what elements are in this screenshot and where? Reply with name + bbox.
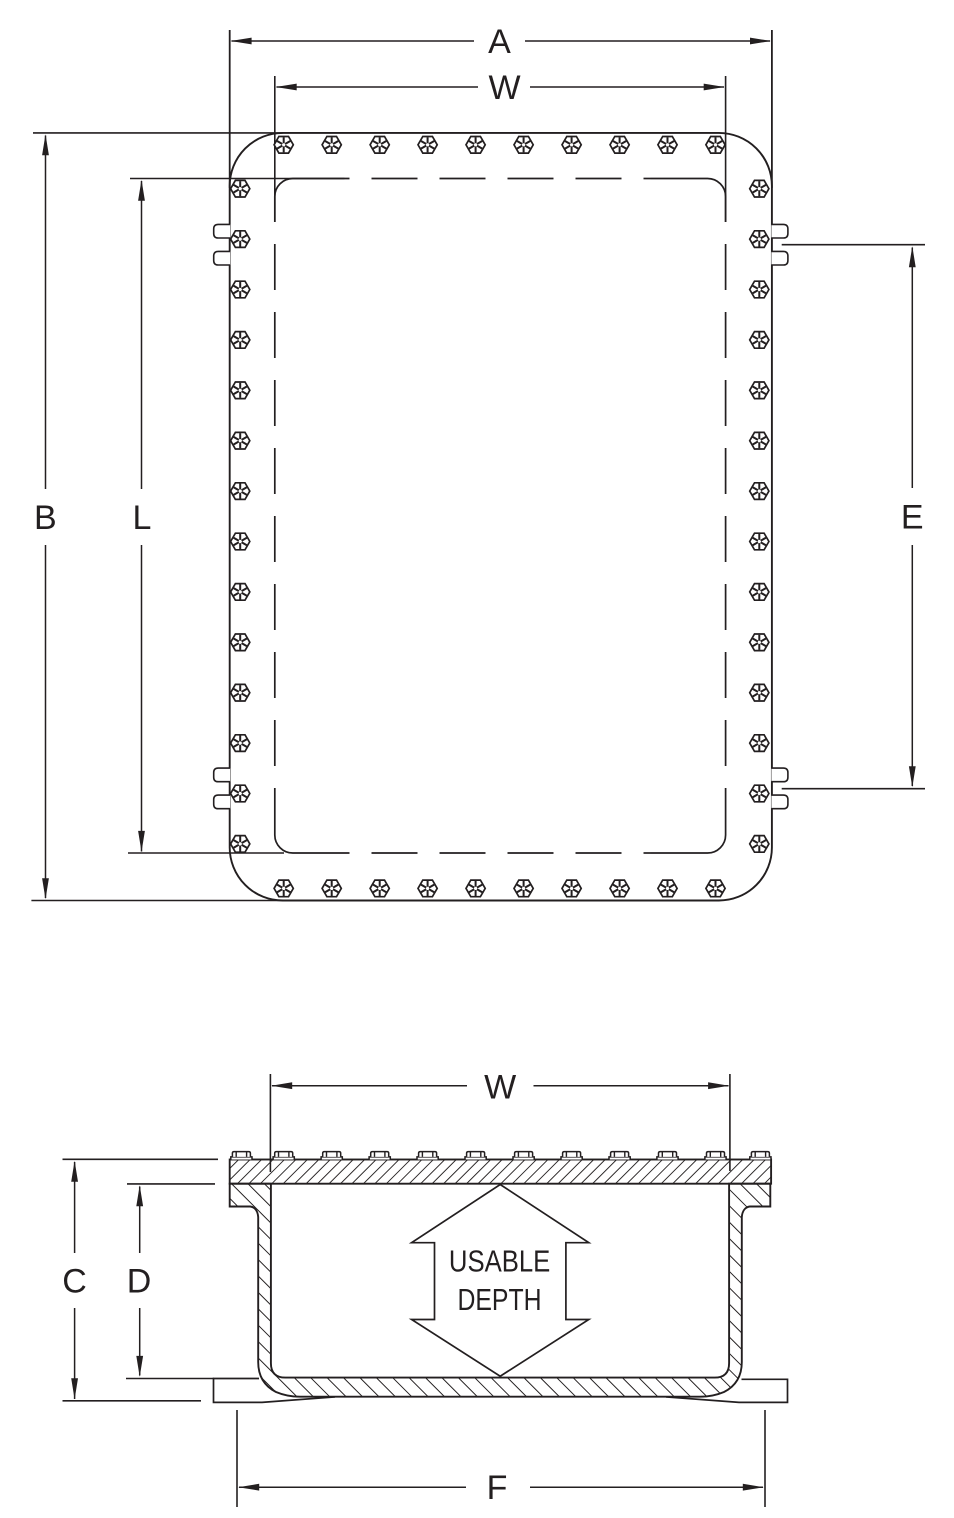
svg-text:W: W xyxy=(488,69,520,107)
svg-text:USABLE: USABLE xyxy=(449,1244,550,1279)
svg-text:W: W xyxy=(484,1069,516,1107)
svg-text:L: L xyxy=(133,499,152,537)
svg-text:DEPTH: DEPTH xyxy=(457,1282,541,1317)
svg-text:E: E xyxy=(901,499,924,537)
svg-text:F: F xyxy=(487,1469,508,1507)
svg-text:C: C xyxy=(62,1263,87,1301)
svg-text:A: A xyxy=(488,23,511,61)
svg-text:B: B xyxy=(34,499,57,537)
svg-text:D: D xyxy=(127,1263,152,1301)
